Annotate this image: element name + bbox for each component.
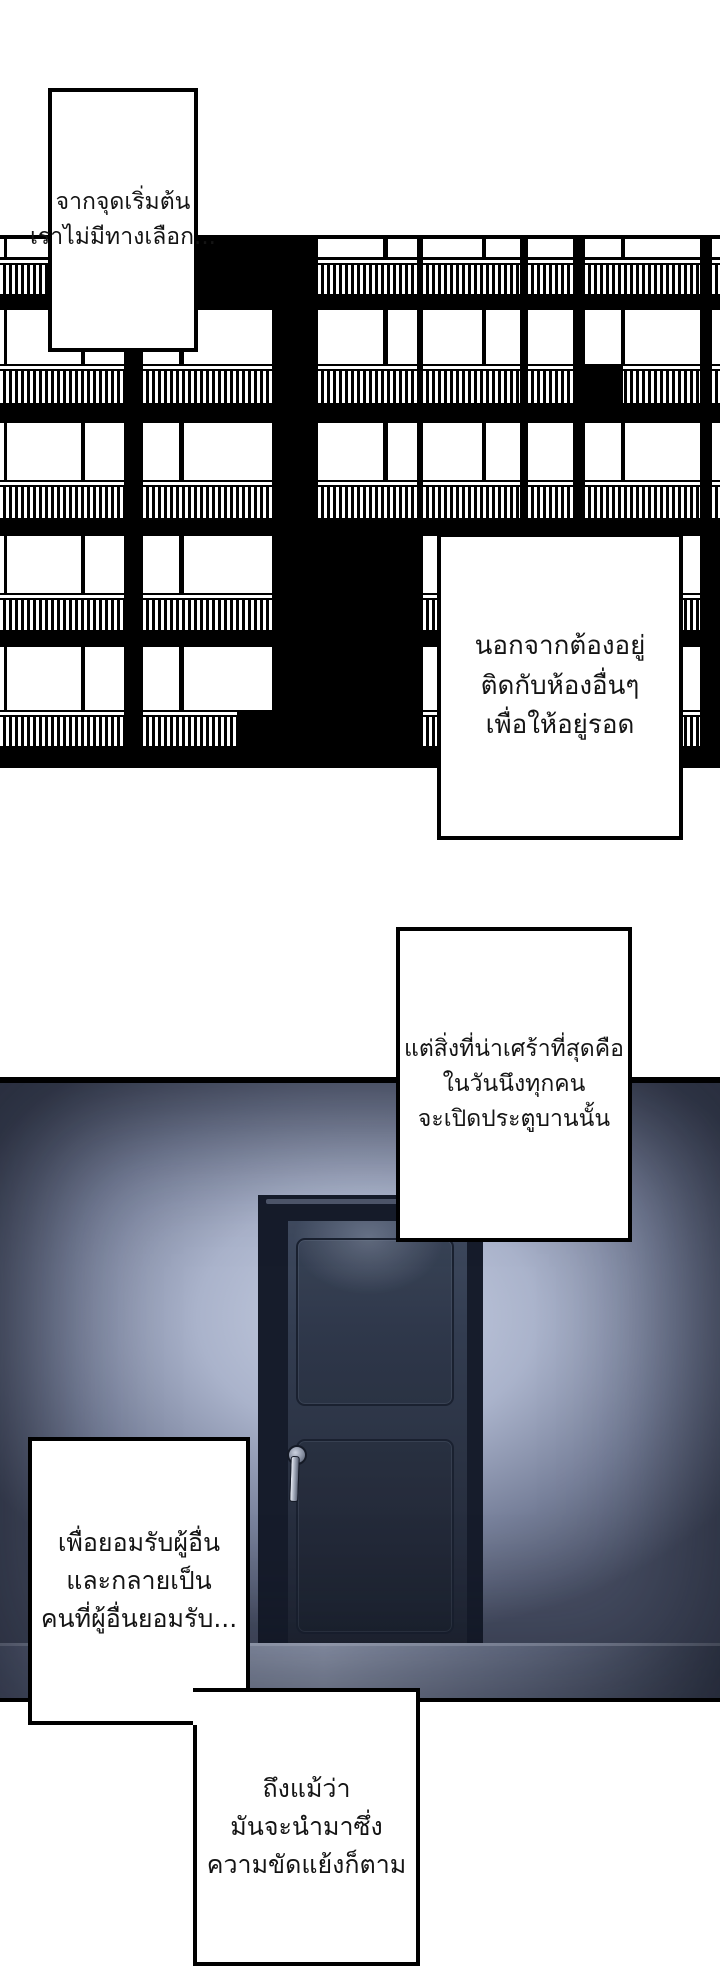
dark-window-patch (237, 712, 272, 746)
caption-line: เพื่อให้อยู่รอด (486, 706, 635, 746)
caption-merge-patch (193, 1692, 250, 1725)
caption-line: คนที่ผู้อื่นยอมรับ... (41, 1600, 237, 1638)
building-window (423, 310, 482, 364)
caption-line: ติดกับห้องอื่นๆ (481, 667, 640, 707)
caption-line: ในวันนึงทุกคน (443, 1067, 586, 1102)
balcony-railing (712, 264, 720, 294)
building-window (0, 423, 4, 480)
caption-line: จะเปิดประตูบานนั้น (418, 1102, 610, 1137)
window-sill-line (0, 482, 124, 485)
balcony-railing (0, 599, 124, 630)
building-window (184, 647, 272, 710)
caption-line: เราไม่มีทางเลือก... (30, 220, 216, 255)
balcony-railing (423, 486, 520, 518)
building-window (7, 423, 81, 480)
building-window (143, 647, 179, 710)
balcony-railing (528, 264, 573, 294)
window-sill-line (0, 366, 124, 369)
building-window (388, 423, 417, 480)
building-window (143, 536, 179, 593)
caption-box-2: นอกจากต้องอยู่ ติดกับห้องอื่นๆ เพื่อให้อ… (437, 533, 683, 840)
window-sill-line (143, 595, 272, 598)
balcony-railing (143, 486, 272, 518)
window-sill-line (585, 482, 700, 485)
building-window (143, 423, 179, 480)
building-window (423, 423, 482, 480)
balcony-railing (528, 370, 573, 403)
window-sill-line (143, 366, 272, 369)
balcony-railing (0, 370, 124, 403)
balcony-railing (318, 264, 417, 294)
balcony-railing (585, 486, 700, 518)
caption-box-3: แต่สิ่งที่น่าเศร้าที่สุดคือ ในวันนึงทุกค… (396, 927, 632, 1242)
window-sill-line (712, 482, 720, 485)
balcony-railing (143, 599, 272, 630)
building-window (85, 647, 124, 710)
window-sill-line (712, 366, 720, 369)
building-window (712, 310, 720, 364)
window-sill-line (0, 712, 124, 715)
window-sill-line (423, 260, 520, 263)
caption-box-5: ถึงแม้ว่า มันจะนำมาซึ่ง ความขัดแย้งก็ตาม (193, 1688, 420, 1966)
building-window (7, 536, 81, 593)
caption-line: ความขัดแย้งก็ตาม (207, 1846, 406, 1884)
building-window (318, 423, 383, 480)
window-sill-line (585, 260, 700, 263)
balcony-railing (0, 486, 124, 518)
building-window (528, 423, 573, 480)
window-sill-line (423, 366, 520, 369)
building-window (585, 239, 621, 257)
balcony-railing (318, 486, 417, 518)
building-window (184, 423, 272, 480)
building-window (0, 647, 4, 710)
caption-line: นอกจากต้องอยู่ (475, 627, 646, 667)
building-window (486, 239, 520, 257)
window-sill-line (423, 482, 520, 485)
window-sill-line (0, 595, 124, 598)
window-sill-line (528, 482, 573, 485)
building-window (423, 239, 482, 257)
caption-line: ถึงแม้ว่า (262, 1770, 350, 1808)
building-window (528, 239, 573, 257)
balcony-railing (528, 486, 573, 518)
caption-line: แต่สิ่งที่น่าเศร้าที่สุดคือ (404, 1032, 624, 1067)
caption-line: และกลายเป็น (66, 1562, 212, 1600)
building-window (388, 239, 417, 257)
balcony-railing (423, 370, 520, 403)
comic-page: จากจุดเริ่มต้น เราไม่มีทางเลือก... นอกจา… (0, 0, 720, 1985)
building-window (712, 423, 720, 480)
window-sill-line (318, 366, 417, 369)
window-sill-line (528, 366, 573, 369)
building-window (388, 310, 417, 364)
balcony-railing (712, 370, 720, 403)
building-window (486, 423, 520, 480)
building-window (85, 423, 124, 480)
building-window (318, 310, 383, 364)
building-window (318, 239, 383, 257)
building-window (0, 239, 4, 257)
building-window (712, 239, 720, 257)
building-window (85, 536, 124, 593)
building-window (0, 310, 4, 364)
building-window (585, 310, 621, 364)
caption-line: จากจุดเริ่มต้น (56, 185, 191, 220)
balcony-railing (318, 370, 417, 403)
building-window (625, 423, 700, 480)
building-window (528, 310, 573, 364)
caption-box-1: จากจุดเริ่มต้น เราไม่มีทางเลือก... (48, 88, 198, 352)
balcony-railing (143, 370, 272, 403)
dark-window-patch (585, 366, 623, 404)
building-window (0, 536, 4, 593)
building-window (625, 239, 700, 257)
building-window (625, 310, 700, 364)
caption-line: เพื่อยอมรับผู้อื่น (58, 1524, 220, 1562)
window-sill-line (528, 260, 573, 263)
balcony-railing (0, 716, 124, 746)
window-sill-line (318, 482, 417, 485)
window-sill-line (318, 260, 417, 263)
building-window (184, 536, 272, 593)
caption-box-4: เพื่อยอมรับผู้อื่น และกลายเป็น คนที่ผู้อ… (28, 1437, 250, 1725)
balcony-railing (712, 486, 720, 518)
balcony-railing (423, 264, 520, 294)
building-window (7, 647, 81, 710)
balcony-railing (585, 264, 700, 294)
window-sill-line (712, 260, 720, 263)
building-window (585, 423, 621, 480)
window-sill-line (143, 482, 272, 485)
caption-line: มันจะนำมาซึ่ง (230, 1808, 382, 1846)
building-window (486, 310, 520, 364)
